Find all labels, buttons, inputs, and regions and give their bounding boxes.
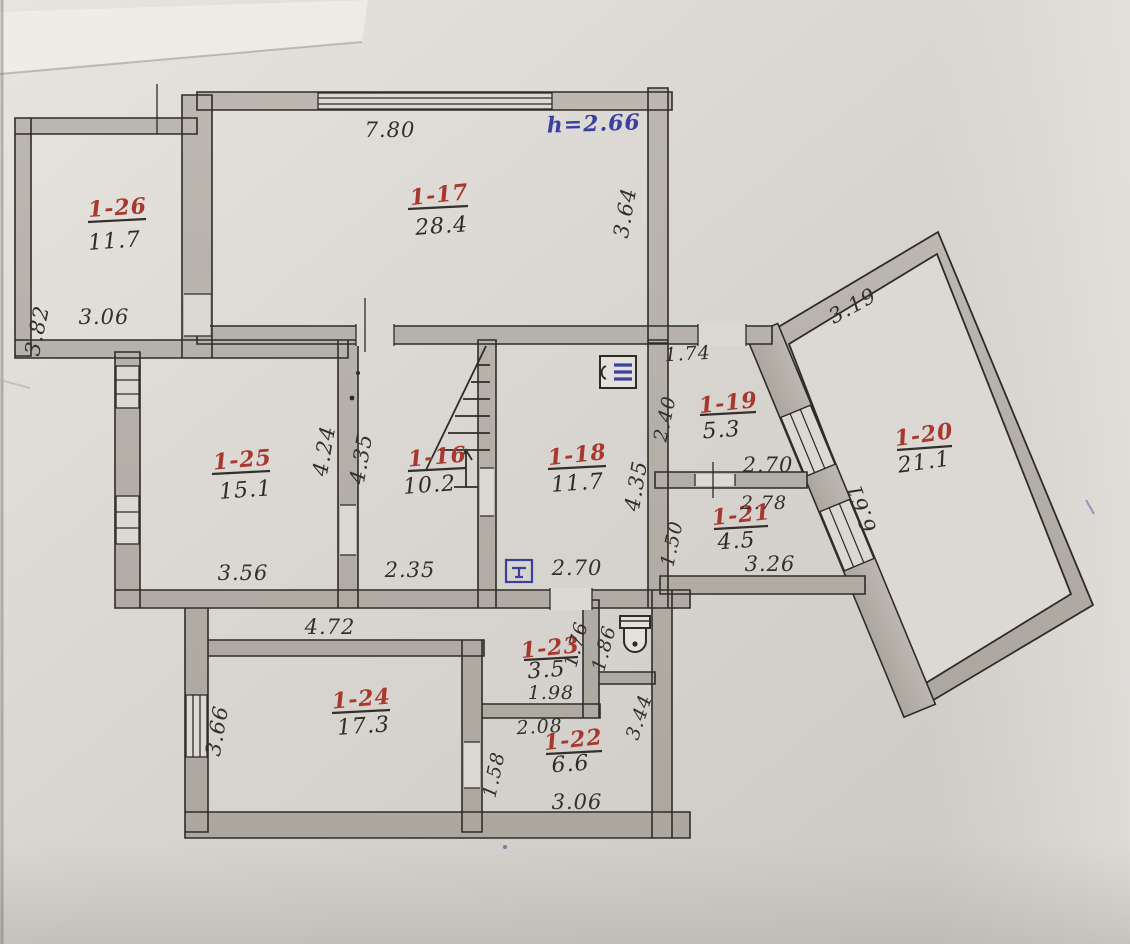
- room-1-26-area-label: 11.7: [87, 227, 142, 256]
- dim-1-23-bottom: 1.98: [528, 682, 574, 704]
- floor-plan-photo: 1-26 11.7 3.82 3.06 1-17 28.4 7.80 h=2.6…: [0, 0, 1130, 944]
- floor-plan-drawing: 1-26 11.7 3.82 3.06 1-17 28.4 7.80 h=2.6…: [0, 0, 1130, 944]
- dim-1-22-top: 2.08: [515, 715, 563, 739]
- room-1-16-area-label: 10.2: [402, 471, 457, 500]
- room-1-25-area-label: 15.1: [218, 476, 273, 505]
- dim-1-19-top: 1.74: [664, 342, 711, 366]
- room-1-25-id-label: 1-25: [212, 445, 273, 476]
- dim-1-21-top: 2.78: [740, 492, 787, 514]
- dim-1-19-bottom: 2.70: [742, 453, 794, 477]
- room-1-26-id-label: 1-26: [87, 193, 148, 223]
- toilet-icon: [620, 616, 650, 652]
- dim-1-26-bottom: 3.06: [79, 305, 130, 329]
- dim-1-24-top: 4.72: [304, 615, 356, 639]
- room-1-24-area-label: 17.3: [336, 712, 391, 741]
- dim-1-22-bottom: 3.06: [552, 790, 603, 814]
- room-1-17-area-label: 28.4: [413, 212, 469, 241]
- room-1-19-area-label: 5.3: [702, 417, 742, 445]
- dim-1-25-bottom: 3.56: [218, 561, 269, 585]
- room-1-18-area-label: 11.7: [550, 469, 605, 498]
- boiler-icon: [600, 356, 636, 388]
- room-1-22-area-label: 6.6: [551, 751, 591, 779]
- dim-1-16-bottom: 2.35: [384, 558, 436, 582]
- room-1-16-id-label: 1-16: [407, 442, 468, 473]
- dim-1-21-bottom: 3.26: [745, 552, 796, 576]
- dim-1-17-top: 7.80: [365, 118, 416, 142]
- ceiling-height-note: h=2.66: [546, 109, 641, 138]
- room-1-24-id-label: 1-24: [331, 684, 392, 715]
- dim-1-18-bottom: 2.70: [551, 556, 603, 580]
